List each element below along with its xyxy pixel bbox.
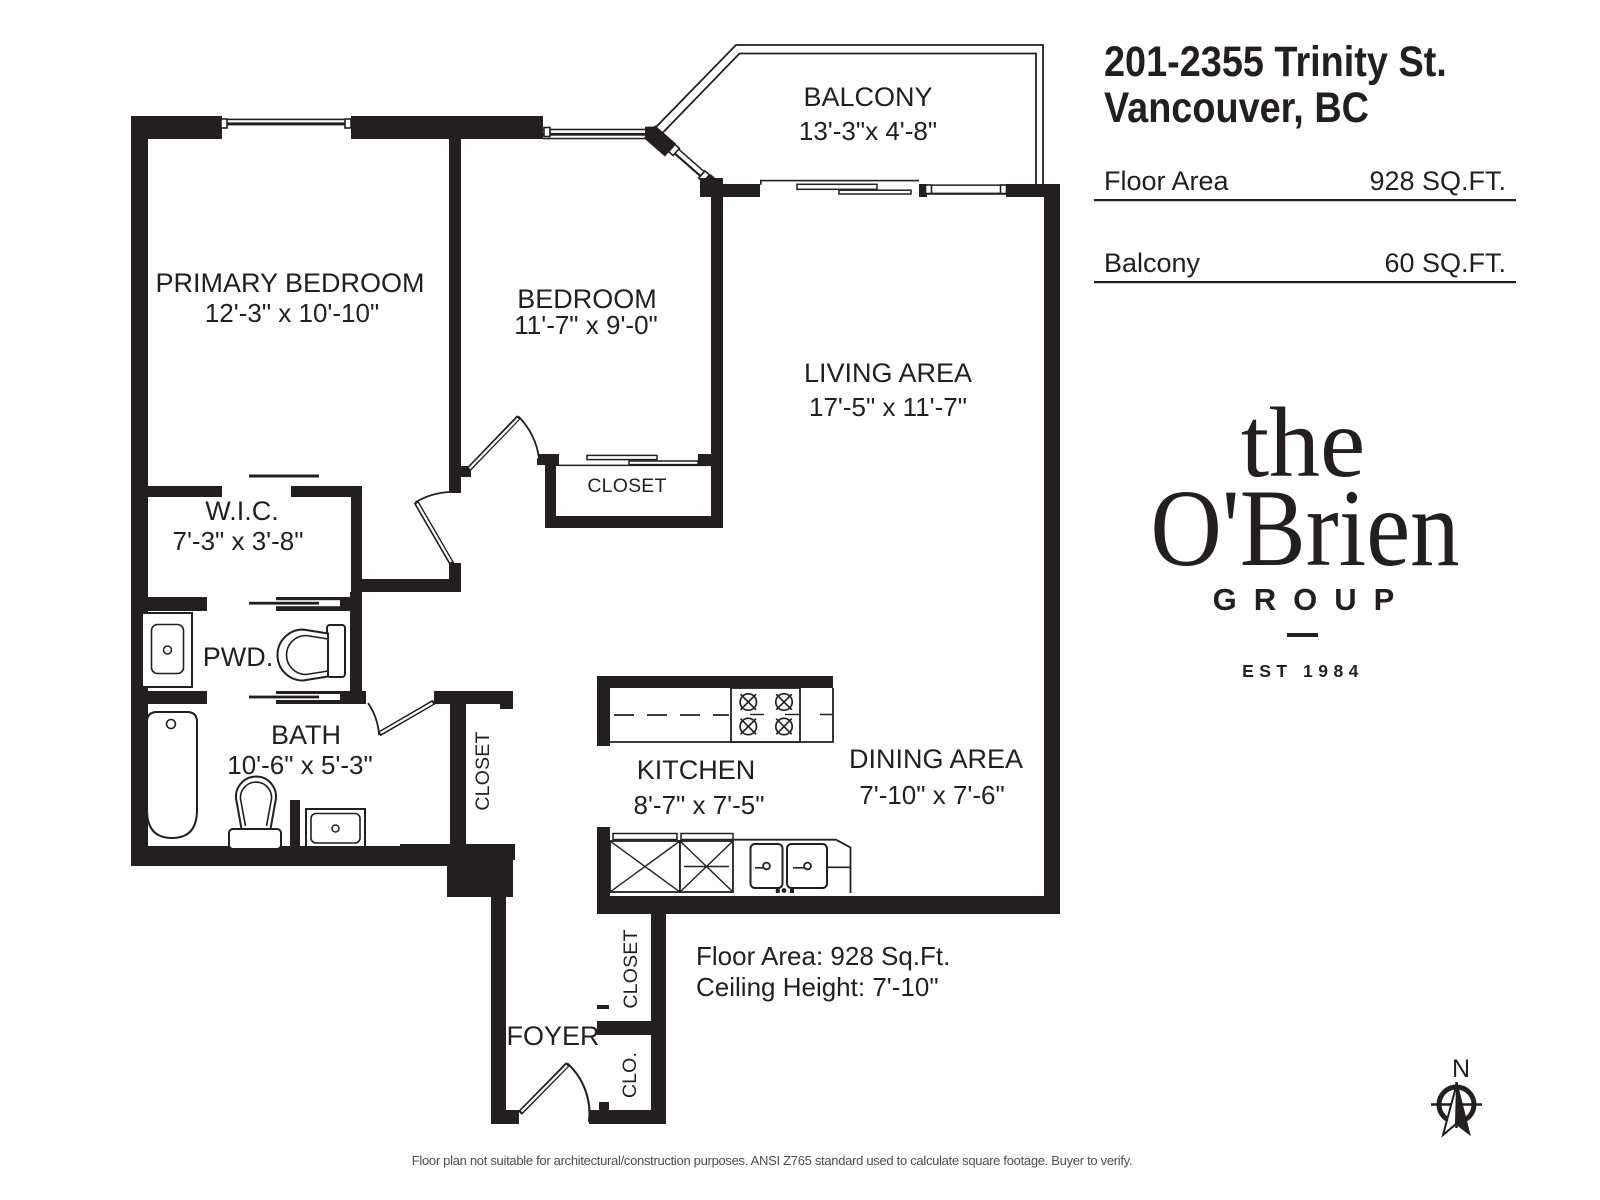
svg-text:CLOSET: CLOSET (472, 731, 494, 810)
svg-text:13'-3"x 4'-8": 13'-3"x 4'-8" (799, 116, 937, 146)
svg-text:CLOSET: CLOSET (620, 929, 642, 1008)
svg-text:Balcony: Balcony (1104, 248, 1201, 278)
svg-text:11'-7" x 9'-0": 11'-7" x 9'-0" (514, 310, 658, 340)
svg-text:Ceiling Height: 7'-10": Ceiling Height: 7'-10" (696, 972, 939, 1002)
svg-text:17'-5" x 11'-7": 17'-5" x 11'-7" (809, 392, 967, 422)
svg-text:Floor Area: Floor Area (1104, 166, 1230, 196)
svg-text:FOYER: FOYER (506, 1021, 599, 1051)
svg-text:201-2355 Trinity St.: 201-2355 Trinity St. (1104, 37, 1447, 86)
svg-text:8'-7" x 7'-5": 8'-7" x 7'-5" (634, 790, 765, 820)
svg-text:Vancouver, BC: Vancouver, BC (1104, 83, 1369, 132)
svg-text:CLO.: CLO. (619, 1052, 641, 1098)
svg-text:LIVING AREA: LIVING AREA (804, 358, 972, 388)
svg-text:7'-3" x 3'-8": 7'-3" x 3'-8" (173, 526, 304, 556)
svg-text:BALCONY: BALCONY (803, 82, 932, 112)
svg-text:Floor plan not suitable for ar: Floor plan not suitable for architectura… (412, 1153, 1132, 1168)
svg-text:Floor Area: 928 Sq.Ft.: Floor Area: 928 Sq.Ft. (696, 941, 950, 971)
svg-text:O'Brien: O'Brien (1150, 467, 1459, 589)
svg-text:CLOSET: CLOSET (587, 475, 666, 497)
svg-text:928 SQ.FT.: 928 SQ.FT. (1369, 166, 1506, 196)
svg-text:N: N (1452, 1055, 1470, 1083)
svg-text:GROUP: GROUP (1213, 582, 1412, 617)
svg-text:W.I.C.: W.I.C. (205, 496, 279, 526)
svg-text:KITCHEN: KITCHEN (637, 755, 756, 785)
svg-text:DINING AREA: DINING AREA (849, 744, 1023, 774)
svg-text:7'-10" x 7'-6": 7'-10" x 7'-6" (859, 780, 1004, 810)
svg-text:PWD.: PWD. (203, 642, 274, 672)
svg-text:60 SQ.FT.: 60 SQ.FT. (1384, 248, 1506, 278)
svg-text:12'-3" x 10'-10": 12'-3" x 10'-10" (205, 298, 379, 328)
svg-text:10'-6" x 5'-3": 10'-6" x 5'-3" (227, 750, 372, 780)
svg-text:EST 1984: EST 1984 (1242, 661, 1364, 681)
svg-text:BATH: BATH (271, 720, 341, 750)
svg-text:PRIMARY BEDROOM: PRIMARY BEDROOM (155, 268, 424, 298)
